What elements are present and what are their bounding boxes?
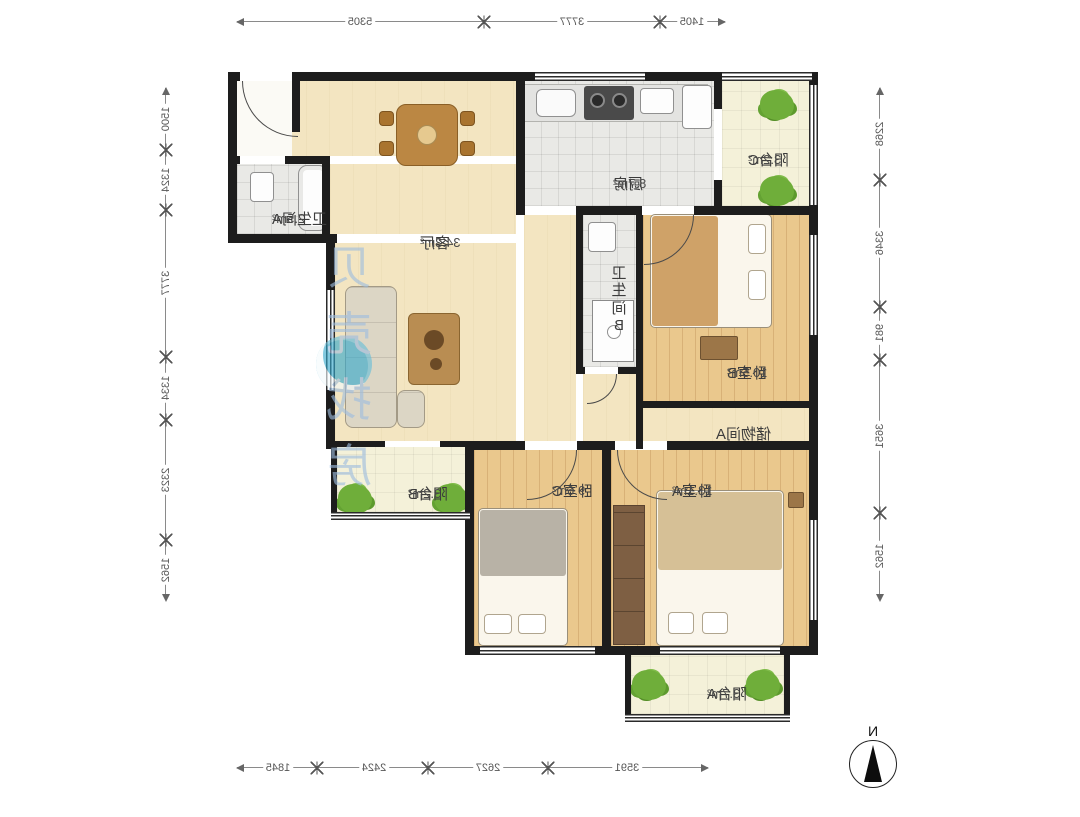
dining-centerpiece (417, 125, 437, 145)
wall-segment (645, 72, 722, 81)
room-area: 3.7m² (707, 684, 740, 704)
nightstand (788, 492, 804, 508)
wardrobe (613, 505, 645, 645)
dimension-label: 2424 (359, 762, 389, 774)
wall-segment (576, 215, 583, 374)
window (331, 512, 470, 520)
dimension-label: 3777 (160, 268, 172, 298)
toilet (588, 222, 616, 252)
dimension-label: 981 (874, 321, 886, 345)
dimension-tick (478, 16, 491, 29)
window (535, 72, 645, 81)
dimension-tick (874, 174, 887, 187)
dimension-tick (654, 16, 667, 29)
wall-segment (285, 156, 330, 164)
wall-segment (625, 650, 631, 722)
fridge (682, 85, 712, 129)
living-floor (330, 164, 516, 234)
wall-segment (576, 367, 585, 374)
wall-segment (809, 335, 818, 520)
dimension-label: 2323 (160, 465, 172, 495)
wall-segment (784, 650, 790, 722)
room-area: 13.1m² (672, 481, 712, 501)
wall-segment (465, 441, 474, 655)
dimension-arrow (236, 764, 244, 772)
wall-segment (714, 72, 722, 109)
dimension-label: 3346 (874, 228, 886, 258)
window (809, 235, 818, 335)
kitchen-sink (536, 89, 576, 117)
dimension-arrow (718, 18, 726, 26)
dimension-tick (160, 414, 173, 427)
dimension-label: 3651 (874, 421, 886, 451)
dimension-label: 3777 (557, 16, 587, 28)
wall-segment (602, 449, 611, 655)
dining-chair (460, 111, 475, 126)
dimension-label: 3591 (612, 762, 642, 774)
room-area: 9.6m² (552, 481, 585, 501)
dimension-label: 1334 (160, 373, 172, 403)
small-appliance (640, 88, 674, 114)
dining-chair (460, 141, 475, 156)
plant-icon (760, 176, 794, 206)
window (480, 646, 595, 655)
wall-segment (636, 215, 643, 449)
wall-segment (465, 646, 480, 655)
stove-burner (590, 93, 605, 108)
dimension-tick (422, 762, 435, 775)
wall-segment (694, 206, 818, 215)
dimension-tick (542, 762, 555, 775)
table-decor (424, 330, 444, 350)
compass-needle-icon (864, 745, 882, 782)
dimension-arrow (876, 87, 884, 95)
dimension-tick (160, 351, 173, 364)
toilet (250, 172, 274, 202)
dining-chair (379, 141, 394, 156)
dimension-label: 1324 (160, 165, 172, 195)
wall-segment (576, 206, 642, 215)
wall-segment (516, 72, 525, 215)
dimension-label: 1562 (874, 541, 886, 571)
wall-segment (809, 620, 818, 655)
room-area: 2.5m² (272, 209, 305, 229)
blanket (480, 510, 566, 576)
dimension-label: 1500 (160, 104, 172, 134)
pillow (702, 612, 728, 634)
dimension-label: 1845 (263, 762, 293, 774)
wall-segment (643, 401, 818, 408)
window (660, 646, 780, 655)
window (625, 714, 790, 722)
dimension-tick (160, 534, 173, 547)
dining-chair (379, 111, 394, 126)
dimension-tick (874, 301, 887, 314)
plant-icon (760, 90, 794, 120)
dimension-tick (311, 762, 324, 775)
dimension-arrow (701, 764, 709, 772)
room-area: 34.3m² (420, 233, 460, 253)
dimension-label: 2627 (473, 762, 503, 774)
dimension-label: 1405 (677, 16, 707, 28)
dimension-arrow (876, 594, 884, 602)
dimension-tick (160, 144, 173, 157)
dimension-arrow (162, 87, 170, 95)
dimension-label: 5305 (345, 16, 375, 28)
room-name: 卫生间B (610, 265, 628, 334)
wall-segment (300, 72, 535, 81)
wall-segment (228, 156, 240, 164)
pillow (748, 224, 766, 254)
blanket (658, 492, 782, 570)
dimension-label: 2268 (874, 119, 886, 149)
room-area: 10.5m² (727, 363, 767, 383)
dimension-arrow (162, 594, 170, 602)
hallway-floor (524, 215, 576, 441)
room-area: 3.2m² (408, 484, 441, 504)
watermark-text: 贝壳找房 (319, 232, 372, 496)
wall-segment (474, 441, 525, 450)
dimension-label: 1562 (160, 555, 172, 585)
wall-segment (618, 367, 643, 374)
dimension-tick (160, 204, 173, 217)
window (809, 85, 818, 205)
dimension-tick (874, 507, 887, 520)
table-decor (430, 358, 442, 370)
pillow (518, 614, 546, 634)
floor-plan: 客厅 34.3m² 厨房 8.7m² 阳台C 3.2m² 卫生间A 2.5m² … (0, 0, 1080, 817)
room-area: 3.2m² (748, 150, 781, 170)
window (809, 520, 818, 620)
plant-icon (746, 670, 780, 700)
room-name: 储物间A (716, 424, 771, 447)
dimension-arrow (236, 18, 244, 26)
pillow (748, 270, 766, 300)
dresser (700, 336, 738, 360)
pillow (484, 614, 512, 634)
wall-segment (714, 180, 722, 215)
compass-north-label: N (868, 723, 878, 739)
room-area: 8.7m² (613, 174, 646, 194)
sofa-chaise (397, 390, 425, 428)
plant-icon (632, 670, 666, 700)
wall-segment (516, 206, 524, 215)
stove-burner (612, 93, 627, 108)
dimension-tick (874, 354, 887, 367)
window (722, 72, 812, 81)
pillow (668, 612, 694, 634)
